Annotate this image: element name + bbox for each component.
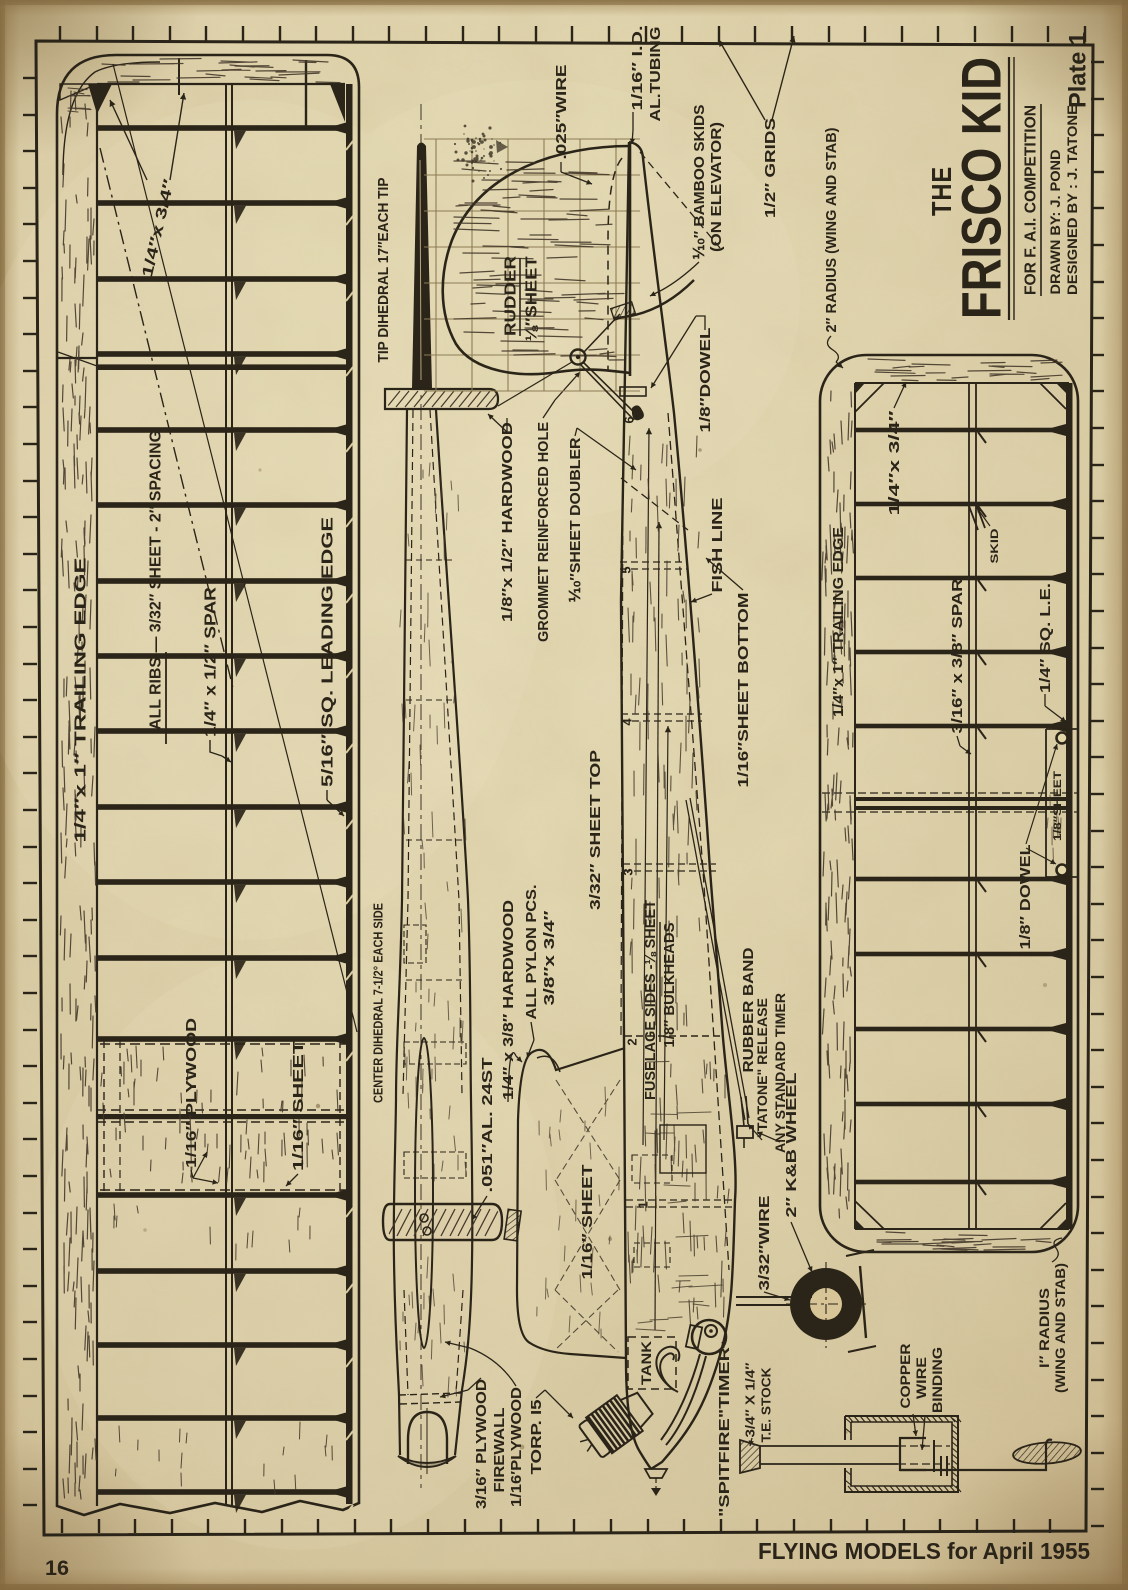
svg-text:1/8″ DOWEL: 1/8″ DOWEL: [1017, 845, 1034, 950]
svg-text:1: 1: [636, 1201, 651, 1208]
svg-text:1/16″ SHEET: 1/16″ SHEET: [290, 1041, 307, 1171]
svg-text:SKID: SKID: [989, 528, 1001, 563]
svg-text:FLYING MODELS for April 19: FLYING MODELS for April 1955: [758, 1538, 1090, 1564]
svg-text:1/8″x 1/2″ HARDWOOD: 1/8″x 1/2″ HARDWOOD: [499, 422, 516, 622]
svg-text:3/16″ PLYWOOD: 3/16″ PLYWOOD: [473, 1379, 490, 1509]
svg-text:1/4″x 1″ TRAILING EDGE: 1/4″x 1″ TRAILING EDGE: [830, 527, 847, 717]
svg-text:1/8″ BULKHEADS: 1/8″ BULKHEADS: [661, 923, 678, 1048]
svg-text:6: 6: [622, 416, 637, 423]
svg-text:1/4″x 3/4″: 1/4″x 3/4″: [886, 411, 903, 516]
svg-text:"TATONE" RELEASE: "TATONE" RELEASE: [754, 998, 770, 1138]
svg-text:1/16″SHEET BOTTOM: 1/16″SHEET BOTTOM: [735, 593, 752, 788]
svg-text:16: 16: [45, 1557, 69, 1580]
svg-text:T.E. STOCK: T.E. STOCK: [759, 1367, 774, 1443]
svg-text:FOR F. A.I. COMPETITION: FOR F. A.I. COMPETITION: [1023, 105, 1040, 295]
svg-text:(WING AND STAB): (WING AND STAB): [1052, 1263, 1068, 1393]
svg-text:1/4″ SQ. L.E.: 1/4″ SQ. L.E.: [1037, 583, 1054, 693]
svg-text:ALL RIBS — 3/32″ SHEET - 2″ SP: ALL RIBS — 3/32″ SHEET - 2″ SPACING: [148, 430, 165, 730]
svg-text:2: 2: [625, 1038, 640, 1045]
svg-text:FISH LINE: FISH LINE: [709, 498, 726, 593]
svg-text:2″ RADIUS (WING AND STAB): 2″ RADIUS (WING AND STAB): [823, 128, 840, 333]
svg-text:1/16″ SHEET: 1/16″ SHEET: [579, 1165, 596, 1280]
svg-text:TORP. I5: TORP. I5: [528, 1400, 545, 1475]
svg-text:.051″AL. 24ST: .051″AL. 24ST: [479, 1058, 496, 1193]
svg-text:WIRE: WIRE: [913, 1357, 929, 1399]
svg-text:3/8″x 3/4″: 3/8″x 3/4″: [541, 911, 558, 1006]
svg-text:RUDDER: RUDDER: [503, 255, 520, 336]
svg-text:1/2″ GRIDS: 1/2″ GRIDS: [762, 118, 779, 218]
svg-text:I″ RADIUS: I″ RADIUS: [1036, 1288, 1052, 1368]
svg-text:1/4″x 1″ TRAILING EDGE: 1/4″x 1″ TRAILING EDGE: [73, 557, 90, 842]
svg-text:4: 4: [620, 718, 635, 726]
svg-text:1/16″ PLYWOOD: 1/16″ PLYWOOD: [183, 1018, 200, 1168]
svg-text:BINDING: BINDING: [929, 1347, 945, 1413]
svg-text:ALL PYLON PCS.: ALL PYLON PCS.: [523, 885, 540, 1020]
svg-text:2″ K&B WHEEL: 2″ K&B WHEEL: [783, 1073, 800, 1218]
svg-text:CENTER DIHEDRAL 7-1/2° EACH S: CENTER DIHEDRAL 7-1/2° EACH SIDE: [371, 903, 386, 1103]
svg-text:5/16″ SQ. LEADING EDGE: 5/16″ SQ. LEADING EDGE: [320, 517, 337, 787]
svg-text:⅒″SHEET DOUBLER: ⅒″SHEET DOUBLER: [567, 437, 584, 602]
svg-text:3/16″ x 3/8″ SPAR: 3/16″ x 3/8″ SPAR: [949, 578, 966, 733]
svg-text:⅛″SHEET: ⅛″SHEET: [524, 256, 541, 341]
svg-text:DRAWN BY: J. POND: DRAWN BY: J. POND: [1047, 150, 1063, 295]
svg-text:TIP DIHEDRAL 17″EACH TIP: TIP DIHEDRAL 17″EACH TIP: [376, 177, 392, 362]
svg-text:AL.TUBING: AL.TUBING: [647, 27, 664, 122]
svg-text:3/32″ SHEET TOP: 3/32″ SHEET TOP: [587, 750, 604, 910]
svg-text:"SPITFIRE"TIMER: "SPITFIRE"TIMER: [716, 1347, 733, 1517]
svg-text:(ON ELEVATOR): (ON ELEVATOR): [708, 122, 725, 252]
svg-text:TANK: TANK: [638, 1341, 654, 1385]
svg-text:DESIGNED BY : J. TATONE: DESIGNED BY : J. TATONE: [1064, 105, 1080, 295]
svg-text:FUSELAGE SIDES -⅛ SHEET: FUSELAGE SIDES -⅛ SHEET: [642, 900, 659, 1100]
svg-text:FRISCO KID: FRISCO KID: [950, 57, 1013, 319]
svg-text:3/32″WIRE: 3/32″WIRE: [756, 1196, 773, 1291]
svg-text:1/8″SHEET: 1/8″SHEET: [1052, 771, 1064, 841]
svg-text:.025″WIRE: .025″WIRE: [553, 65, 570, 160]
svg-text:FIREWALL: FIREWALL: [491, 1408, 508, 1493]
svg-text:3/4″ X 1/4″: 3/4″ X 1/4″: [743, 1363, 758, 1438]
svg-text:3: 3: [621, 868, 636, 875]
svg-text:1/16″ I.D.: 1/16″ I.D.: [629, 26, 646, 111]
svg-text:COPPER: COPPER: [897, 1344, 913, 1409]
svg-text:⅒″ BAMBOO SKIDS: ⅒″ BAMBOO SKIDS: [691, 105, 708, 260]
svg-text:1/16′PLYWOOD: 1/16′PLYWOOD: [508, 1387, 525, 1507]
svg-text:5: 5: [619, 566, 634, 573]
svg-text:1/4″ x 1/2″ SPAR: 1/4″ x 1/2″ SPAR: [203, 586, 220, 737]
svg-text:GROMMET REINFORCED HOLE: GROMMET REINFORCED HOLE: [535, 422, 552, 642]
svg-text:1/8″DOWEL: 1/8″DOWEL: [697, 328, 714, 433]
svg-text:Plate 1: Plate 1: [1064, 32, 1091, 108]
